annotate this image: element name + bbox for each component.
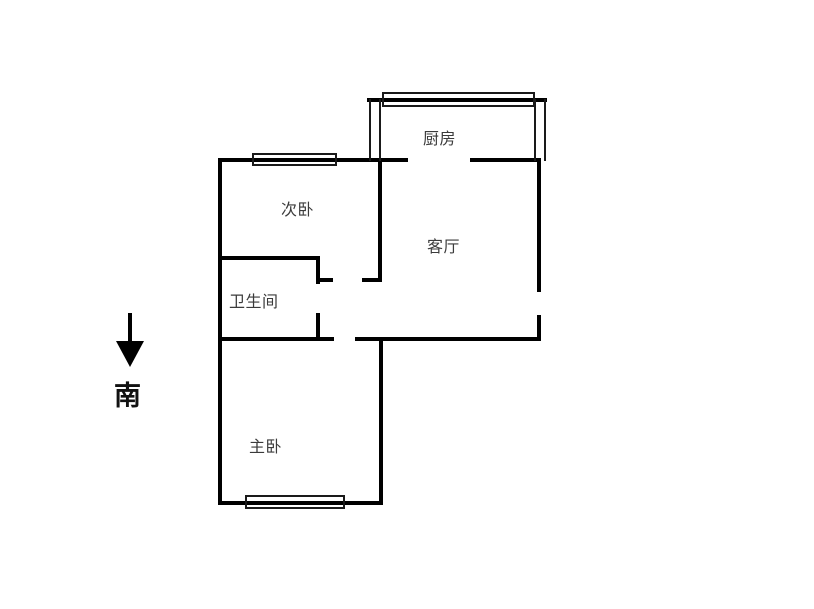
wall-master-right: [379, 337, 383, 505]
wall-living-right-upper: [537, 158, 541, 292]
room-label-bathroom: 卫生间: [229, 293, 279, 311]
floorplan-canvas: 厨房 次卧 客厅 卫生间 主卧 南: [0, 0, 814, 609]
room-label-living-room: 客厅: [427, 238, 460, 256]
wall-bedroom2-door-stub-left: [316, 278, 333, 282]
window-kitchen-left: [369, 99, 381, 161]
room-label-secondary-bedroom: 次卧: [281, 201, 314, 219]
room-label-kitchen: 厨房: [423, 130, 456, 148]
wall-bedroom2-bottom: [218, 256, 320, 260]
south-arrow-icon: [109, 309, 151, 369]
window-kitchen-right: [534, 99, 546, 161]
wall-left-outer: [218, 158, 222, 505]
window-secondary-bedroom: [252, 153, 337, 166]
window-kitchen-top: [382, 92, 535, 107]
wall-middle-left: [218, 337, 334, 341]
window-master-bedroom: [245, 495, 345, 509]
room-label-master-bedroom: 主卧: [249, 438, 282, 456]
wall-kitchen-bottom-right: [470, 158, 540, 162]
wall-bedroom2-living: [378, 158, 382, 282]
compass-south-label: 南: [114, 374, 141, 413]
